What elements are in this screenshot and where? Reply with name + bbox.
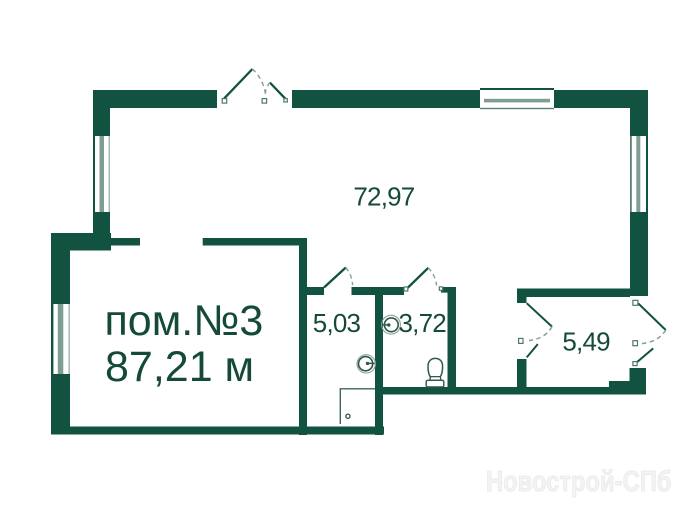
svg-text:Новострой-СПб: Новострой-СПб bbox=[486, 465, 672, 498]
svg-text:87,21 м: 87,21 м bbox=[105, 343, 254, 391]
svg-text:пом.№3: пом.№3 bbox=[105, 297, 264, 345]
svg-text:5,03: 5,03 bbox=[313, 308, 361, 338]
svg-text:5,49: 5,49 bbox=[562, 326, 610, 356]
svg-text:3,72: 3,72 bbox=[399, 308, 447, 338]
svg-text:72,97: 72,97 bbox=[353, 181, 414, 211]
